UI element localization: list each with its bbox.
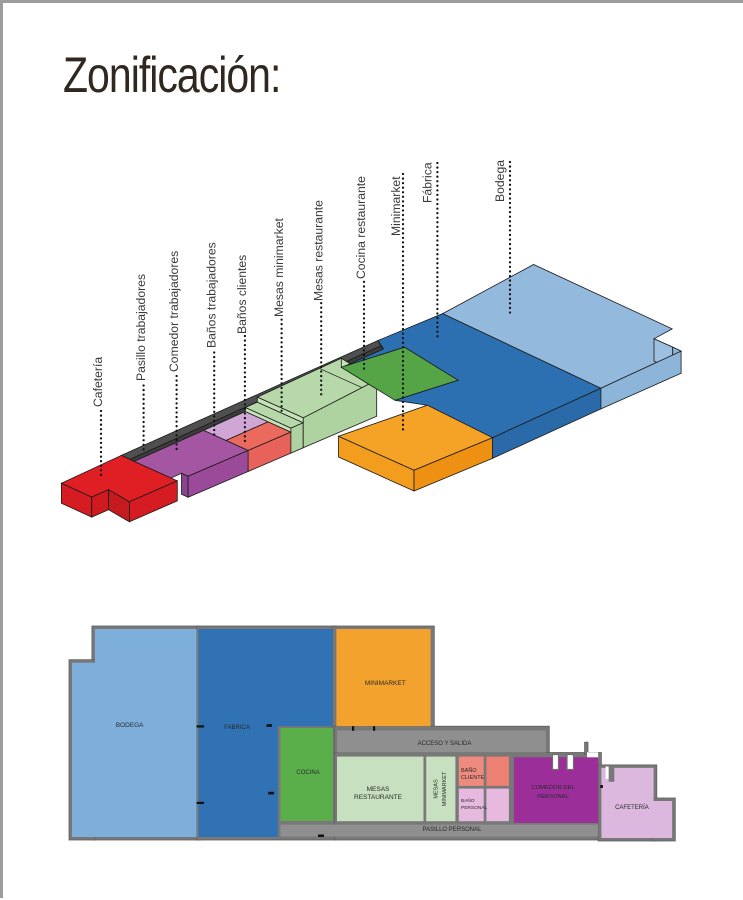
- svg-text:BAÑO: BAÑO: [461, 797, 475, 804]
- svg-text:COCINA: COCINA: [296, 770, 319, 776]
- svg-text:CAFETERÍA: CAFETERÍA: [615, 804, 649, 811]
- svg-text:BAÑO: BAÑO: [461, 767, 477, 774]
- svg-text:PERSONAL: PERSONAL: [461, 805, 487, 811]
- svg-text:BODEGA: BODEGA: [116, 722, 144, 729]
- svg-text:RESTAURANTE: RESTAURANTE: [354, 794, 403, 801]
- svg-text:Pasillo trabajadores: Pasillo trabajadores: [134, 274, 148, 381]
- svg-text:MINIMARKET: MINIMARKET: [442, 771, 448, 806]
- svg-text:MESAS: MESAS: [367, 786, 390, 793]
- svg-text:COMEDOR DEL: COMEDOR DEL: [531, 785, 575, 791]
- svg-text:PERSONAL: PERSONAL: [537, 794, 569, 800]
- svg-text:Cocina restaurante: Cocina restaurante: [354, 176, 368, 279]
- svg-text:CLIENTE: CLIENTE: [461, 775, 485, 781]
- svg-text:Minimarket: Minimarket: [389, 176, 403, 236]
- svg-text:PASILLO PERSONAL: PASILLO PERSONAL: [423, 827, 483, 833]
- svg-text:Mesas restaurante: Mesas restaurante: [311, 200, 325, 301]
- svg-text:Baños trabajadores: Baños trabajadores: [204, 242, 218, 348]
- svg-text:ACCESO Y SALIDA: ACCESO Y SALIDA: [418, 741, 472, 747]
- svg-text:Baños clientes: Baños clientes: [235, 255, 249, 334]
- svg-text:Bodega: Bodega: [493, 160, 507, 202]
- svg-text:Comedor trabajadores: Comedor trabajadores: [167, 251, 181, 372]
- svg-text:MESAS: MESAS: [434, 779, 440, 799]
- svg-text:FABRICA: FABRICA: [224, 725, 250, 731]
- svg-text:Fábrica: Fábrica: [421, 162, 435, 203]
- svg-text:MINIMARKET: MINIMARKET: [365, 680, 406, 687]
- svg-text:Mesas minimarket: Mesas minimarket: [272, 218, 286, 317]
- svg-text:Cafetería: Cafetería: [91, 357, 105, 407]
